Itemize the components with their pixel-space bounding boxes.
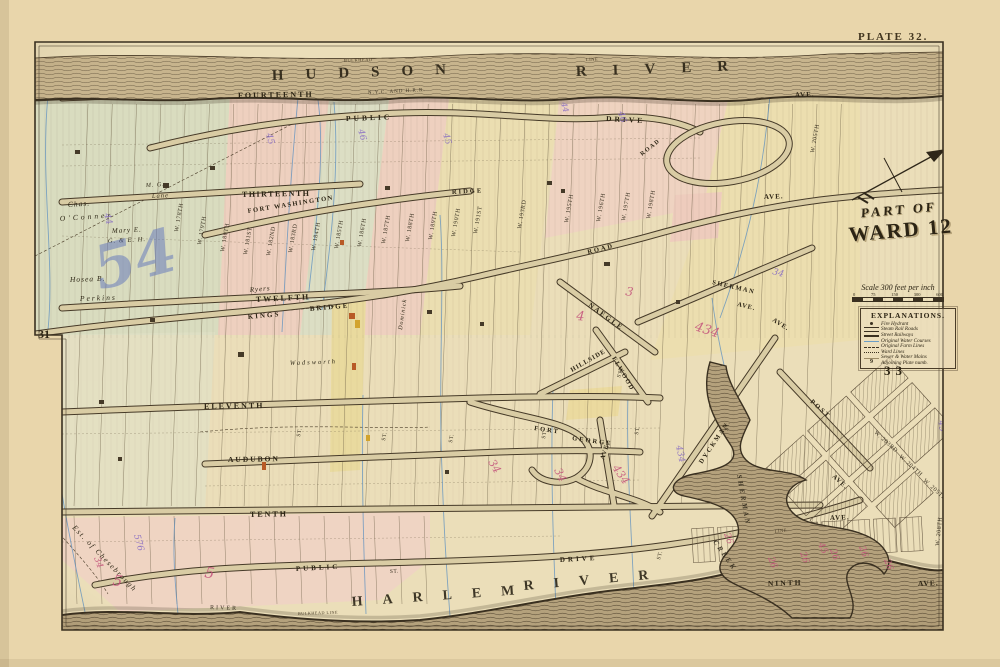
map-label-ave: FOURTEENTH [238, 90, 314, 100]
explanations-legend: EXPLANATIONS. Fire HydrantSteam Rail Roa… [860, 308, 956, 369]
map-label-ave: AVE. [918, 578, 939, 588]
map-label-name: M. G. [145, 182, 165, 189]
scale-tick-label: 75 [871, 292, 876, 297]
steam-railroad-line-icon [864, 327, 879, 332]
farm-line-icon [864, 347, 879, 348]
map-label-ave: AVE. [795, 90, 815, 99]
map-label-small: ST. [390, 568, 399, 575]
water-course-line-icon [864, 341, 879, 342]
map-label-small: RIVER [210, 605, 238, 612]
explanations-items: Fire HydrantSteam Rail RoadsStreet Railw… [864, 321, 952, 366]
map-label-ave: THIRTEENTH [242, 189, 311, 199]
scale-tick-label: 600 [936, 292, 943, 297]
map-label-ave: AVE. [764, 192, 784, 201]
vignette-overlay [0, 0, 1000, 667]
map-label-ave: AVE. [830, 513, 850, 522]
plate-number-icon: 9 [864, 360, 879, 365]
ward-line-icon [864, 352, 879, 353]
map-label-name: Chas. [68, 198, 91, 209]
map-label-annoR: 4 [575, 309, 586, 325]
atlas-map-plate: HUDSONRIVERBULKHEADLINEHARLEMRIVERBULKHE… [0, 0, 1000, 667]
adjoining-plate-left: 31 [38, 327, 50, 342]
map-label-tiny: BULKHEAD [344, 57, 373, 63]
map-label-ave: ELEVENTH [204, 401, 265, 411]
explanations-title: EXPLANATIONS. [864, 311, 952, 320]
map-label-ave: AUDUBON [228, 454, 280, 464]
scale-tick-label: 0 [853, 292, 855, 297]
legend-item: 9Adjoining Plate numb. [864, 360, 952, 366]
map-label-name: Lane [151, 192, 169, 200]
map-label-ave: PUBLIC [346, 112, 393, 123]
scale-text: Scale 300 feet per inch [852, 283, 944, 292]
scale-tick-label: 300 [914, 292, 921, 297]
plate-number: PLATE 32. [858, 31, 928, 43]
scale-block: Scale 300 feet per inch 075150300600 [852, 283, 944, 302]
map-label-tiny: LINE [586, 57, 598, 62]
paper-edge-bottom [0, 659, 1000, 667]
scale-bar [852, 297, 944, 302]
map-label-ave: TENTH [250, 509, 288, 519]
scale-tick-label: 150 [891, 292, 898, 297]
fire-hydrant-icon [864, 321, 879, 326]
map-artwork: HUDSONRIVERBULKHEADLINEHARLEMRIVERBULKHE… [0, 0, 1000, 667]
street-railway-line-icon [864, 335, 879, 337]
map-canvas: HUDSONRIVERBULKHEADLINEHARLEMRIVERBULKHE… [0, 0, 1000, 667]
paper-edge-left [0, 0, 9, 667]
adjoining-plate-right: 33 [884, 363, 907, 379]
map-label-ave: NINTH [768, 578, 803, 588]
